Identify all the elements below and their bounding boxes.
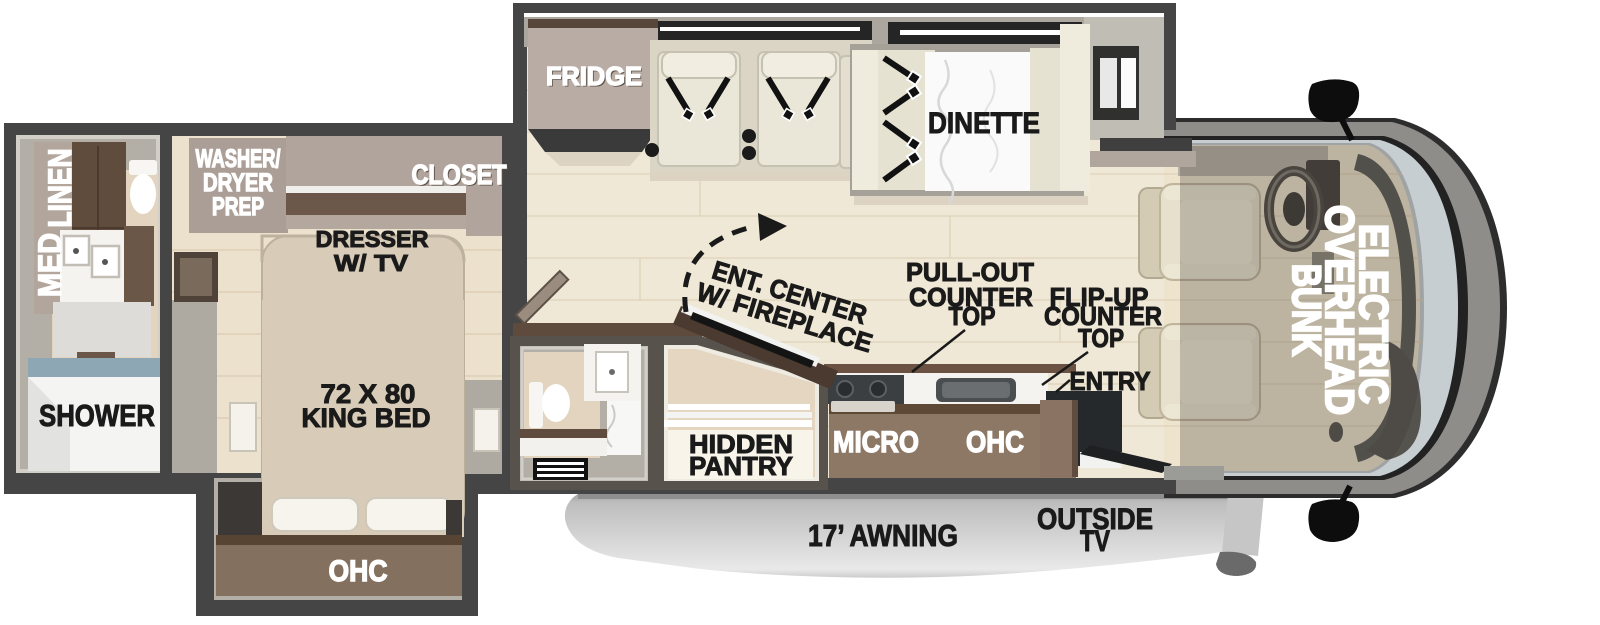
svg-text:MED: MED	[32, 233, 68, 297]
svg-text:OHC: OHC	[966, 426, 1024, 459]
svg-text:W/ TV: W/ TV	[334, 250, 409, 276]
svg-text:LINEN: LINEN	[42, 149, 78, 228]
svg-text:PREP: PREP	[212, 193, 264, 221]
svg-text:KING BED: KING BED	[302, 403, 431, 433]
svg-text:ENTRY: ENTRY	[1070, 366, 1151, 396]
svg-text:CLOSET: CLOSET	[412, 159, 507, 190]
svg-text:DINETTE: DINETTE	[928, 107, 1040, 140]
svg-text:OHC: OHC	[329, 555, 388, 588]
svg-text:BUNK: BUNK	[1284, 264, 1328, 356]
svg-text:FRIDGE: FRIDGE	[546, 61, 642, 91]
svg-text:PANTRY: PANTRY	[689, 451, 793, 481]
svg-text:TOP: TOP	[1078, 323, 1124, 353]
svg-text:17’ AWNING: 17’ AWNING	[808, 518, 958, 553]
svg-text:TV: TV	[1080, 525, 1110, 558]
svg-text:SHOWER: SHOWER	[39, 398, 155, 433]
svg-text:TOP: TOP	[949, 301, 996, 331]
svg-text:MICRO: MICRO	[833, 426, 919, 459]
svg-text:DRESSER: DRESSER	[316, 226, 429, 252]
